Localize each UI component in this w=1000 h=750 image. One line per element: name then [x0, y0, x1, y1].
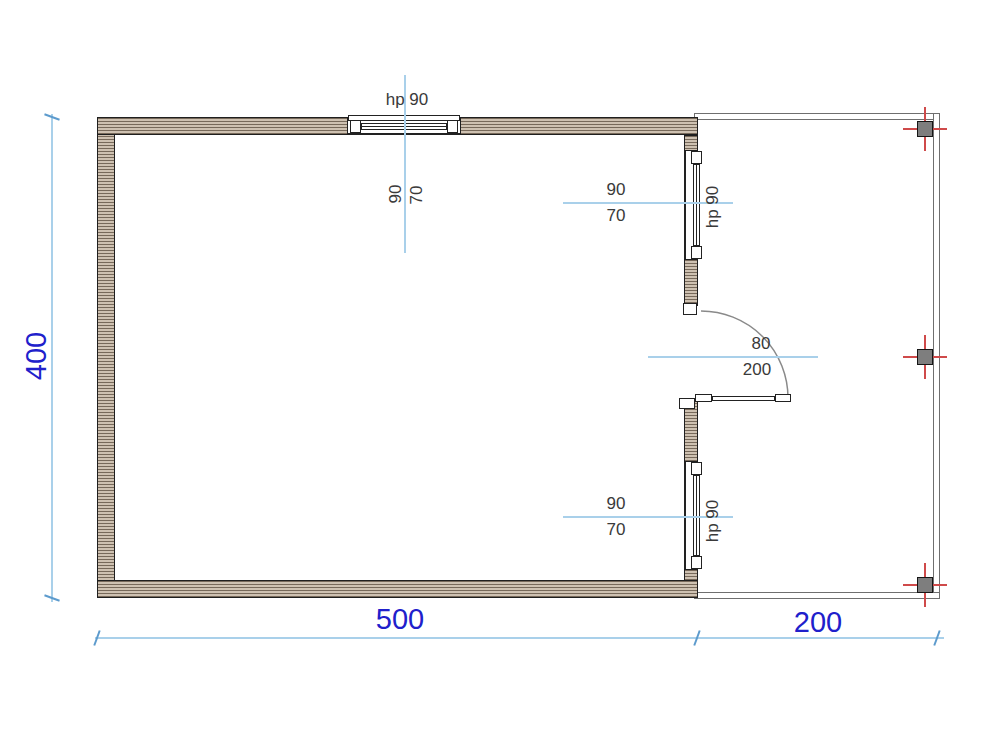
porch-wall-top: [694, 113, 940, 120]
column-marker-middle: [917, 349, 933, 365]
top-window-jamb-left: [350, 120, 361, 133]
top-window-jamb-right: [447, 120, 458, 133]
height-dimension-value: 400: [20, 332, 53, 380]
right-window-top-hp-label: hp 90: [703, 186, 723, 229]
right-window-top-width-label: 90: [607, 180, 626, 200]
right-window-top-jamb-lower: [691, 246, 702, 259]
wall-bottom: [97, 580, 698, 598]
top-window-width-label: 90: [386, 185, 406, 204]
right-window-top-jamb-upper: [691, 151, 702, 164]
column-marker-bottom: [917, 577, 933, 593]
door-leaf-right-cap: [775, 394, 791, 402]
wall-right-stub-1: [684, 135, 698, 151]
main-width-dimension-value: 500: [376, 603, 424, 636]
right-window-top-sash-midline: [696, 164, 697, 246]
right-window-bottom-height-label: 70: [607, 520, 626, 540]
door-height-label: 200: [743, 360, 771, 380]
door-size-line: [648, 356, 818, 358]
right-window-bottom-width-label: 90: [607, 494, 626, 514]
wall-top-left-segment: [97, 117, 348, 135]
wall-right-stub-4: [684, 569, 698, 581]
door-width-label: 80: [752, 334, 771, 354]
door-leaf-panel: [712, 396, 775, 401]
wall-right-stub-2: [684, 259, 698, 306]
door-jamb-top: [683, 303, 697, 315]
top-window-height-label: 70: [407, 186, 427, 205]
porch-width-dimension-value: 200: [794, 606, 842, 639]
column-marker-top: [917, 121, 933, 137]
door-jamb-bottom: [679, 398, 695, 409]
wall-left: [97, 117, 115, 598]
floor-plan-canvas: 400 500 200 hp 90 90 70 90 70 hp 90 90 7…: [0, 0, 1000, 750]
right-window-bottom-jamb-lower: [691, 556, 702, 569]
wall-top-right-segment: [460, 117, 698, 135]
porch-wall-bottom: [694, 592, 940, 599]
right-window-top-height-label: 70: [607, 206, 626, 226]
right-window-top-face-line: [684, 151, 686, 259]
right-window-bottom-jamb-upper: [691, 462, 702, 475]
top-window-hp-label: hp 90: [386, 90, 429, 110]
right-window-bottom-hp-label: hp 90: [703, 500, 723, 543]
door-leaf-left-cap: [695, 394, 712, 402]
